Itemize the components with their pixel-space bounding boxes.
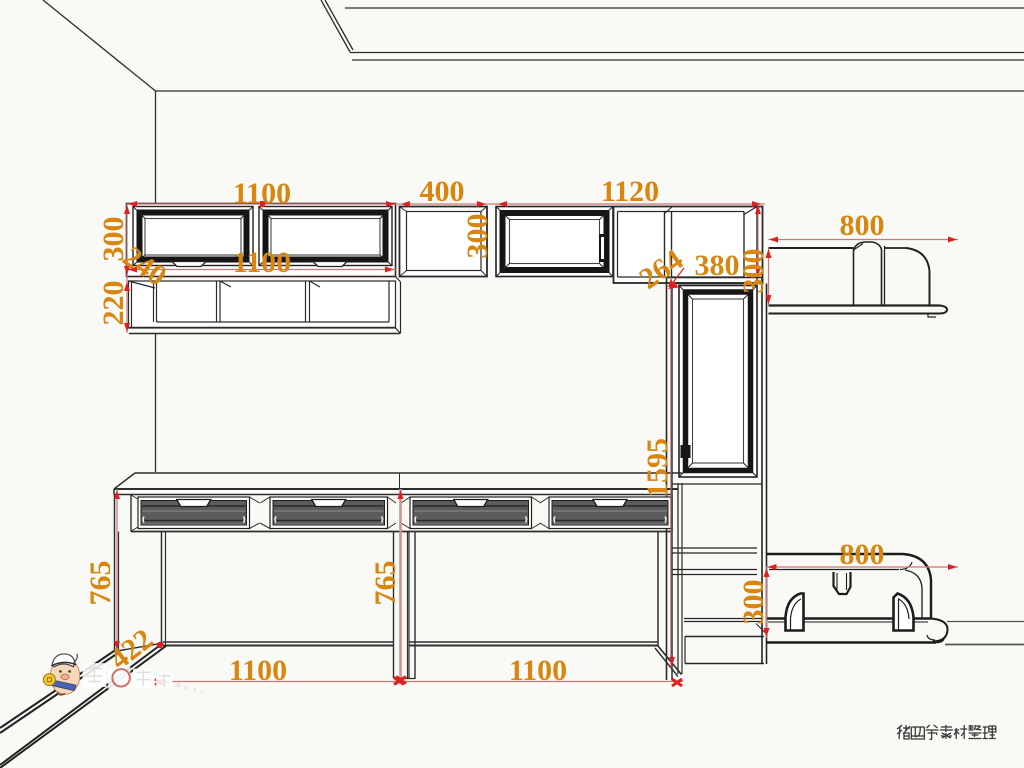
svg-text:400: 400 <box>420 175 465 208</box>
svg-text:1120: 1120 <box>601 175 659 208</box>
svg-text:1595: 1595 <box>641 438 674 498</box>
svg-text:1100: 1100 <box>233 177 291 210</box>
svg-text:300: 300 <box>737 249 770 294</box>
svg-text:800: 800 <box>840 209 885 242</box>
svg-text:1100: 1100 <box>233 246 291 279</box>
svg-text:1100: 1100 <box>229 654 287 687</box>
svg-text:220: 220 <box>97 281 130 326</box>
svg-text:300: 300 <box>461 214 494 259</box>
svg-text:765: 765 <box>84 561 117 606</box>
svg-text:765: 765 <box>369 561 402 606</box>
svg-text:380: 380 <box>695 249 740 282</box>
svg-text:1100: 1100 <box>509 654 567 687</box>
svg-text:800: 800 <box>840 538 885 571</box>
svg-text:300: 300 <box>737 580 770 625</box>
